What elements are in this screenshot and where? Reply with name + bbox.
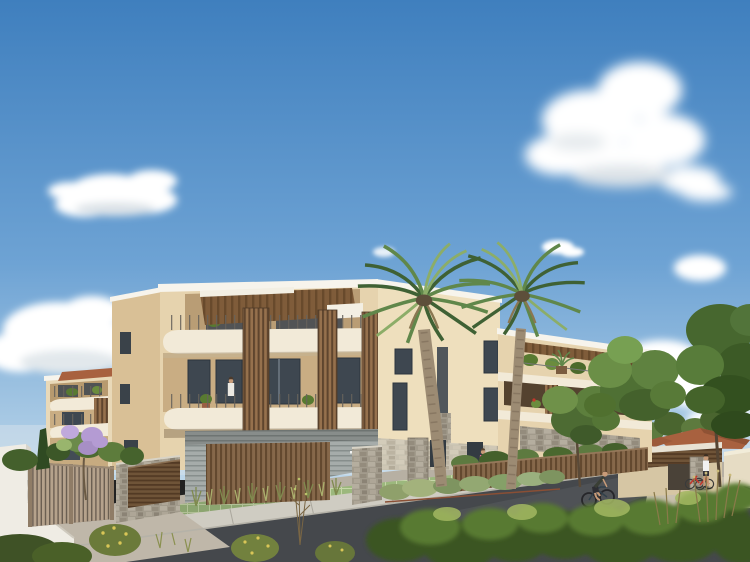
annex-doorway bbox=[668, 464, 690, 490]
architectural-render bbox=[0, 0, 750, 562]
balcony-band-upper bbox=[163, 328, 378, 354]
terrace-rail bbox=[166, 315, 375, 330]
stone-wedge bbox=[352, 446, 382, 505]
secondary-rail-mid bbox=[52, 414, 92, 425]
slat-screen-2 bbox=[318, 310, 337, 431]
stone-column bbox=[408, 438, 428, 483]
secondary-rail-top bbox=[52, 386, 106, 397]
slat-screen-1 bbox=[243, 308, 269, 431]
slat-screen-3 bbox=[362, 312, 379, 431]
mid-rail bbox=[166, 394, 375, 408]
render-canvas bbox=[0, 0, 750, 562]
far-right-wall bbox=[724, 448, 750, 488]
balcony-band-lower bbox=[164, 407, 378, 430]
